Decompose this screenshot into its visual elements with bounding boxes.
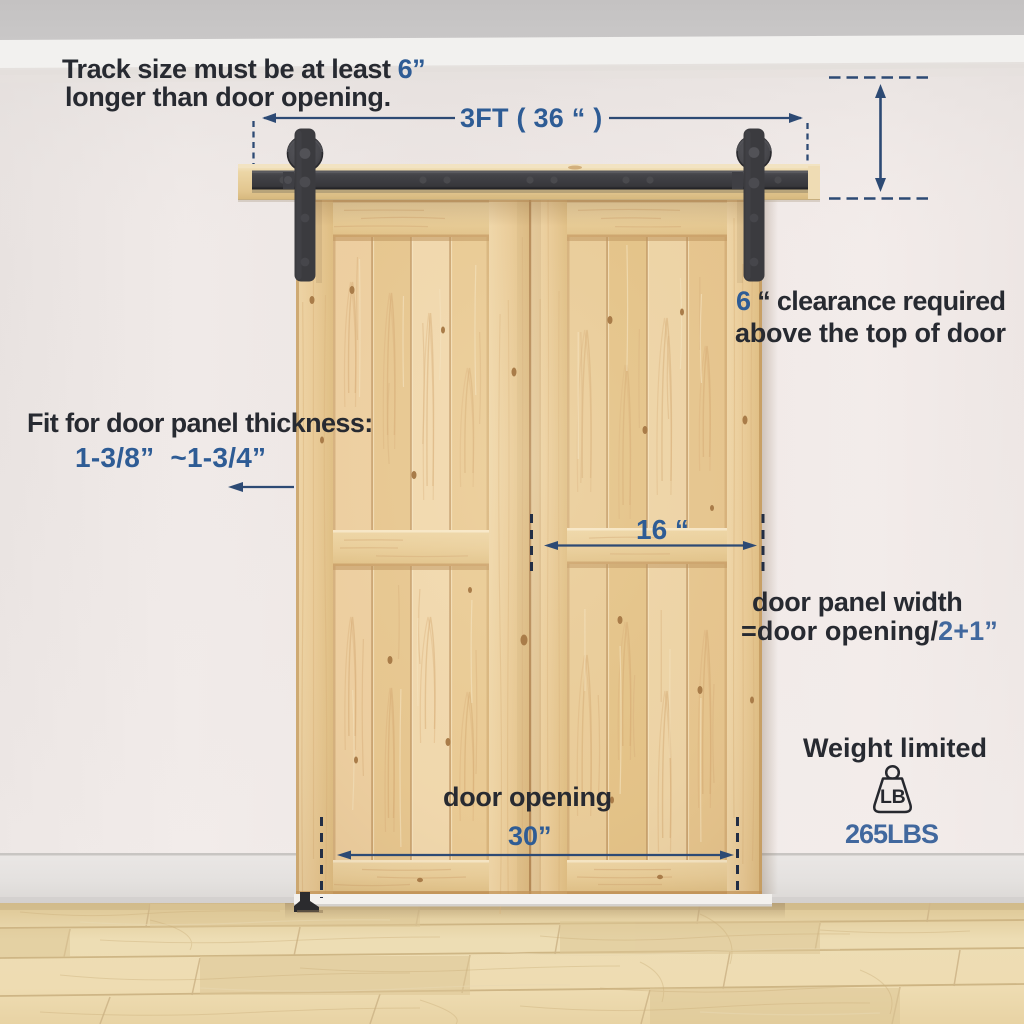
svg-text:1-3/8” ~1-3/4”: 1-3/8” ~1-3/4” [75,442,266,473]
svg-text:door panel width: door panel width [752,587,962,617]
svg-text:Weight limited: Weight limited [803,733,987,763]
svg-text:Track size must be at least 6”: Track size must be at least 6” [62,54,425,84]
svg-text:6 “ clearance required: 6 “ clearance required [736,286,1005,316]
svg-text:265LBS: 265LBS [845,819,938,849]
svg-text:LB: LB [880,786,906,808]
svg-text:door opening: door opening [443,782,612,812]
svg-text:=door opening/2+1”: =door opening/2+1” [741,616,998,646]
svg-text:longer than door opening.: longer than door opening. [65,82,391,112]
svg-text:30”: 30” [508,821,552,851]
svg-text:above the top of door: above the top of door [735,318,1006,348]
svg-text:Fit for door panel thickness:: Fit for door panel thickness: [27,408,373,438]
svg-text:16 “: 16 “ [636,514,689,545]
svg-text:3FT ( 36 “ ): 3FT ( 36 “ ) [460,103,603,133]
